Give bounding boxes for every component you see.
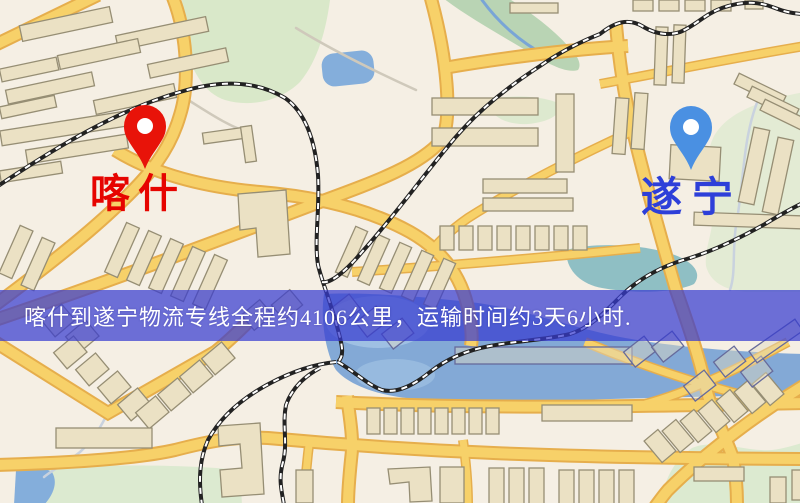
destination-label: 遂宁 xyxy=(641,177,743,218)
route-info-banner: 喀什到遂宁物流专线全程约4106公里，运输时间约3天6小时. xyxy=(0,290,800,341)
origin-label: 喀什 xyxy=(90,174,186,214)
origin-pin-hole xyxy=(137,118,153,134)
map-canvas xyxy=(0,0,800,503)
destination-pin-hole xyxy=(683,119,699,135)
route-info-text: 喀什到遂宁物流专线全程约4106公里，运输时间约3天6小时. xyxy=(0,300,632,332)
map-view[interactable]: 喀什 遂宁 喀什到遂宁物流专线全程约4106公里，运输时间约3天6小时. xyxy=(0,0,800,503)
